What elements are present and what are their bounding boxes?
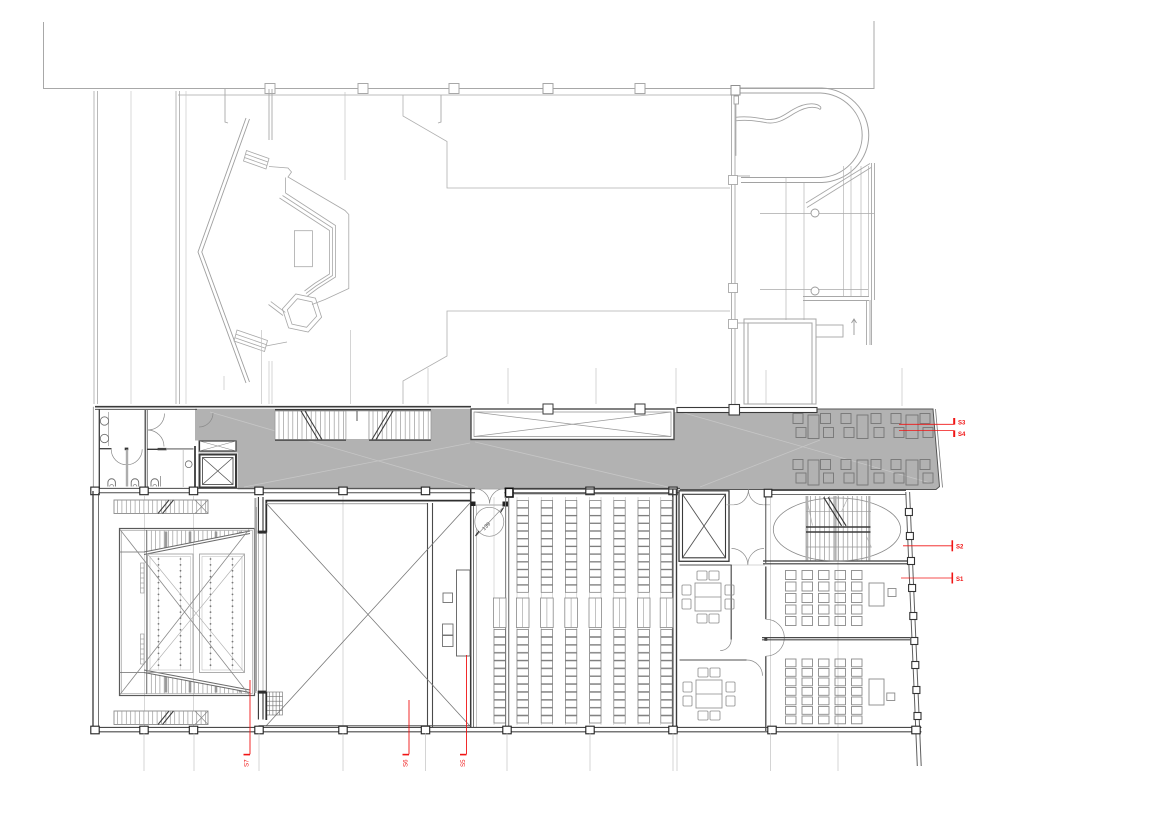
svg-text:S5: S5 [460,759,467,767]
svg-text:S7: S7 [243,759,250,767]
svg-text:S1: S1 [956,577,964,583]
svg-text:S6: S6 [402,759,409,767]
svg-text:S4: S4 [958,432,966,438]
svg-text:S3: S3 [958,421,966,427]
svg-text:S2: S2 [956,545,964,551]
